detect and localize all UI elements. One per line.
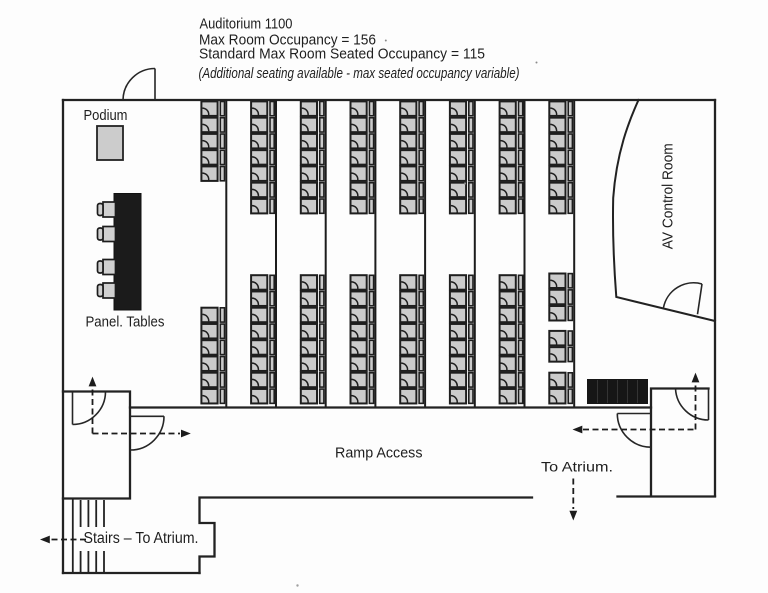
svg-text:Podium: Podium <box>84 108 128 124</box>
svg-text:AV Control Room: AV Control Room <box>659 143 676 249</box>
svg-text:To Atrium.: To Atrium. <box>541 459 613 475</box>
svg-text:Auditorium 1100: Auditorium 1100 <box>200 17 293 33</box>
svg-text:Stairs – To Atrium.: Stairs – To Atrium. <box>84 530 199 547</box>
svg-text:Standard Max Room Seated Occup: Standard Max Room Seated Occupancy = 115 <box>199 46 485 63</box>
svg-text:Ramp Access: Ramp Access <box>335 446 423 462</box>
svg-text:(Additional seating available: (Additional seating available - max seat… <box>199 65 520 82</box>
svg-text:Panel. Tables: Panel. Tables <box>86 315 165 331</box>
